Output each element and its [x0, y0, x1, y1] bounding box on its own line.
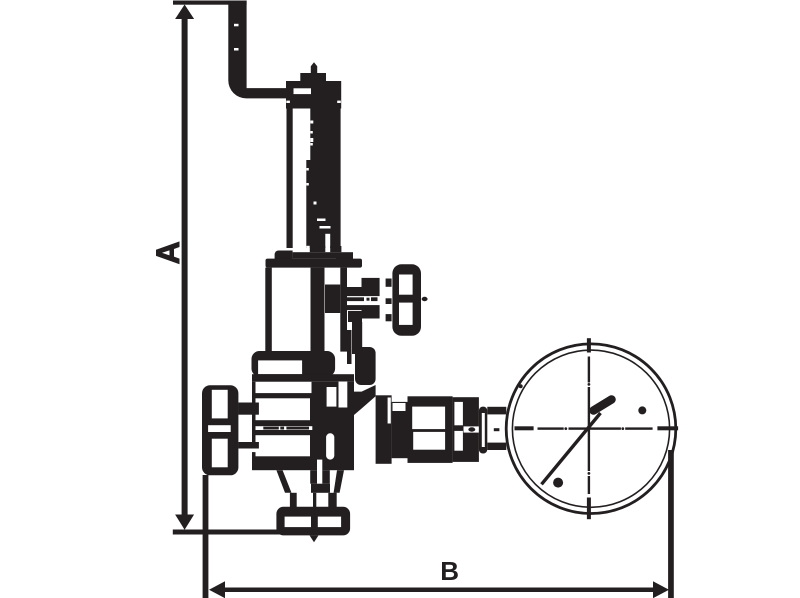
svg-text:A: A — [150, 241, 186, 264]
svg-text:B: B — [440, 556, 459, 586]
